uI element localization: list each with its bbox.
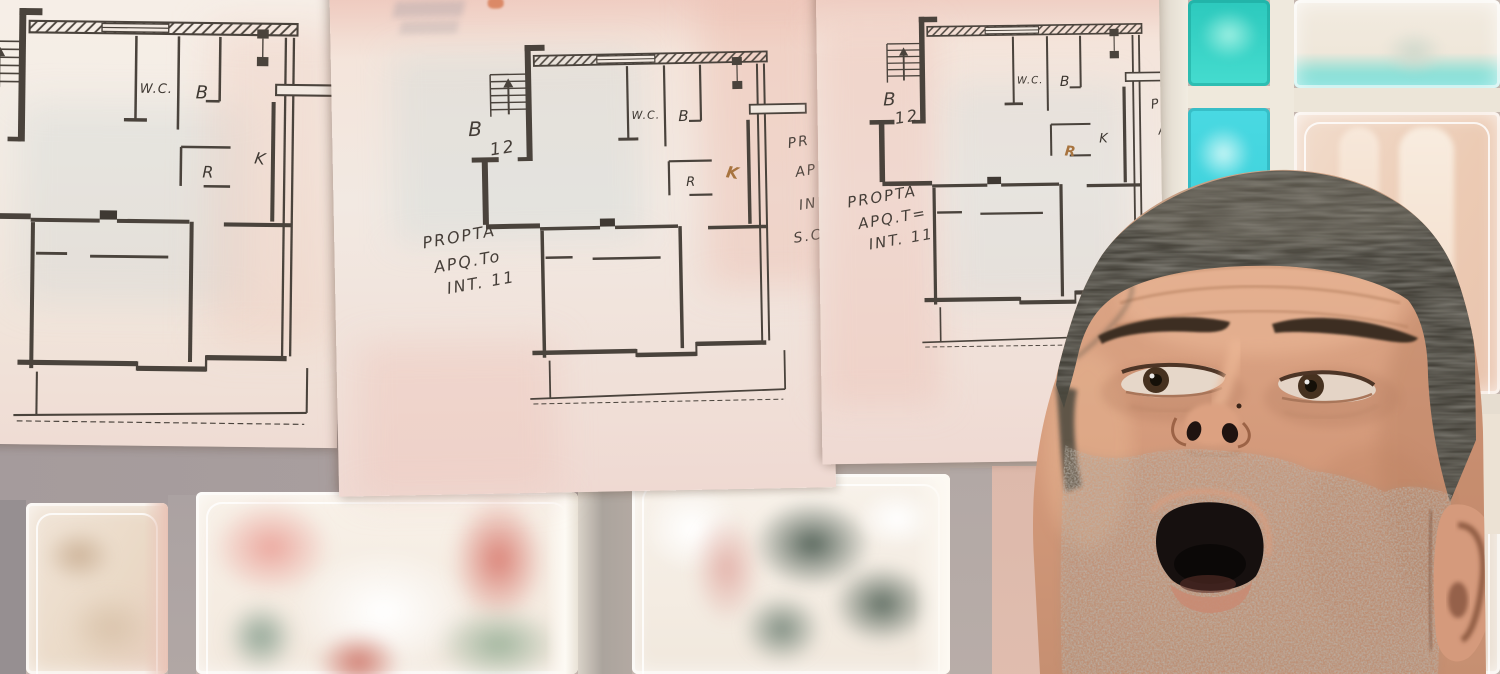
ear-concha <box>1448 582 1468 618</box>
stair-label-no: 12 <box>893 105 920 128</box>
room-label-b: B <box>1060 74 1071 90</box>
stair-label-b: B <box>883 89 898 110</box>
floorplan-drawing-2: B 12 W.C. B R K PROPTA APQ.To INT. 11 PR… <box>330 0 837 497</box>
floorplan-drawing-1: W.C. B R K <box>0 0 343 448</box>
glass-reflection <box>226 602 296 672</box>
window-mullion <box>1188 86 1270 108</box>
room-label-wc: W.C. <box>631 108 660 122</box>
glass-reflection <box>451 497 546 622</box>
glass-block <box>632 474 950 674</box>
glass-gap <box>168 495 196 674</box>
handwritten-note: PROPTA APQ.To INT. 11 <box>421 219 517 301</box>
selfie-photo-scene: W.C. B R K B 12 W.C. B R K PROPTA APQ.To… <box>0 0 1500 674</box>
man-face <box>980 140 1500 674</box>
glass-reflection <box>144 503 168 674</box>
hair-highlight <box>1120 168 1440 252</box>
room-label-wc: W.C. <box>1017 75 1044 86</box>
glass-reflection <box>742 594 822 664</box>
tongue <box>1180 575 1236 593</box>
room-label-b: B <box>196 82 210 103</box>
edge-line-2: AP <box>793 162 818 181</box>
edge-line-1: P <box>1150 96 1162 112</box>
room-label-r: R <box>202 162 214 181</box>
glass-edge-highlight <box>546 492 578 674</box>
glass-block <box>1294 0 1500 88</box>
glass-gap <box>578 480 632 674</box>
plan-linework <box>0 7 341 425</box>
glass-block <box>26 503 168 674</box>
window-mullion <box>1294 88 1500 112</box>
glass-reflection <box>66 593 156 663</box>
glass-edge-highlight <box>914 474 950 674</box>
eye-glint-left <box>1150 374 1155 379</box>
room-label-k: K <box>253 148 268 169</box>
mole <box>1237 404 1242 409</box>
glass-block-cyan <box>1188 0 1270 86</box>
floorplan-paper-2: B 12 W.C. B R K PROPTA APQ.To INT. 11 PR… <box>329 0 836 497</box>
room-label-wc: W.C. <box>140 82 173 97</box>
room-label-b: B <box>678 107 690 125</box>
eye-glint-right <box>1305 380 1310 385</box>
stair-label-b: B <box>468 117 484 141</box>
floorplan-paper-1: W.C. B R K <box>0 0 343 448</box>
edge-line-3: IN <box>798 195 819 214</box>
glass-block <box>196 492 578 674</box>
room-label-k: K <box>725 162 742 183</box>
glass-reflection <box>1200 10 1258 60</box>
room-label-r: R <box>686 175 696 190</box>
stair-label-no: 12 <box>489 137 517 161</box>
glass-reflection <box>1384 30 1444 75</box>
edge-line-1: PR <box>787 133 811 152</box>
plan-linework <box>470 40 812 405</box>
glass-reflection <box>44 528 114 583</box>
glass-gap <box>0 500 26 674</box>
handwritten-note: PROPTA APQ.T= INT. 11 <box>846 180 935 256</box>
glass-reflection <box>436 607 561 674</box>
